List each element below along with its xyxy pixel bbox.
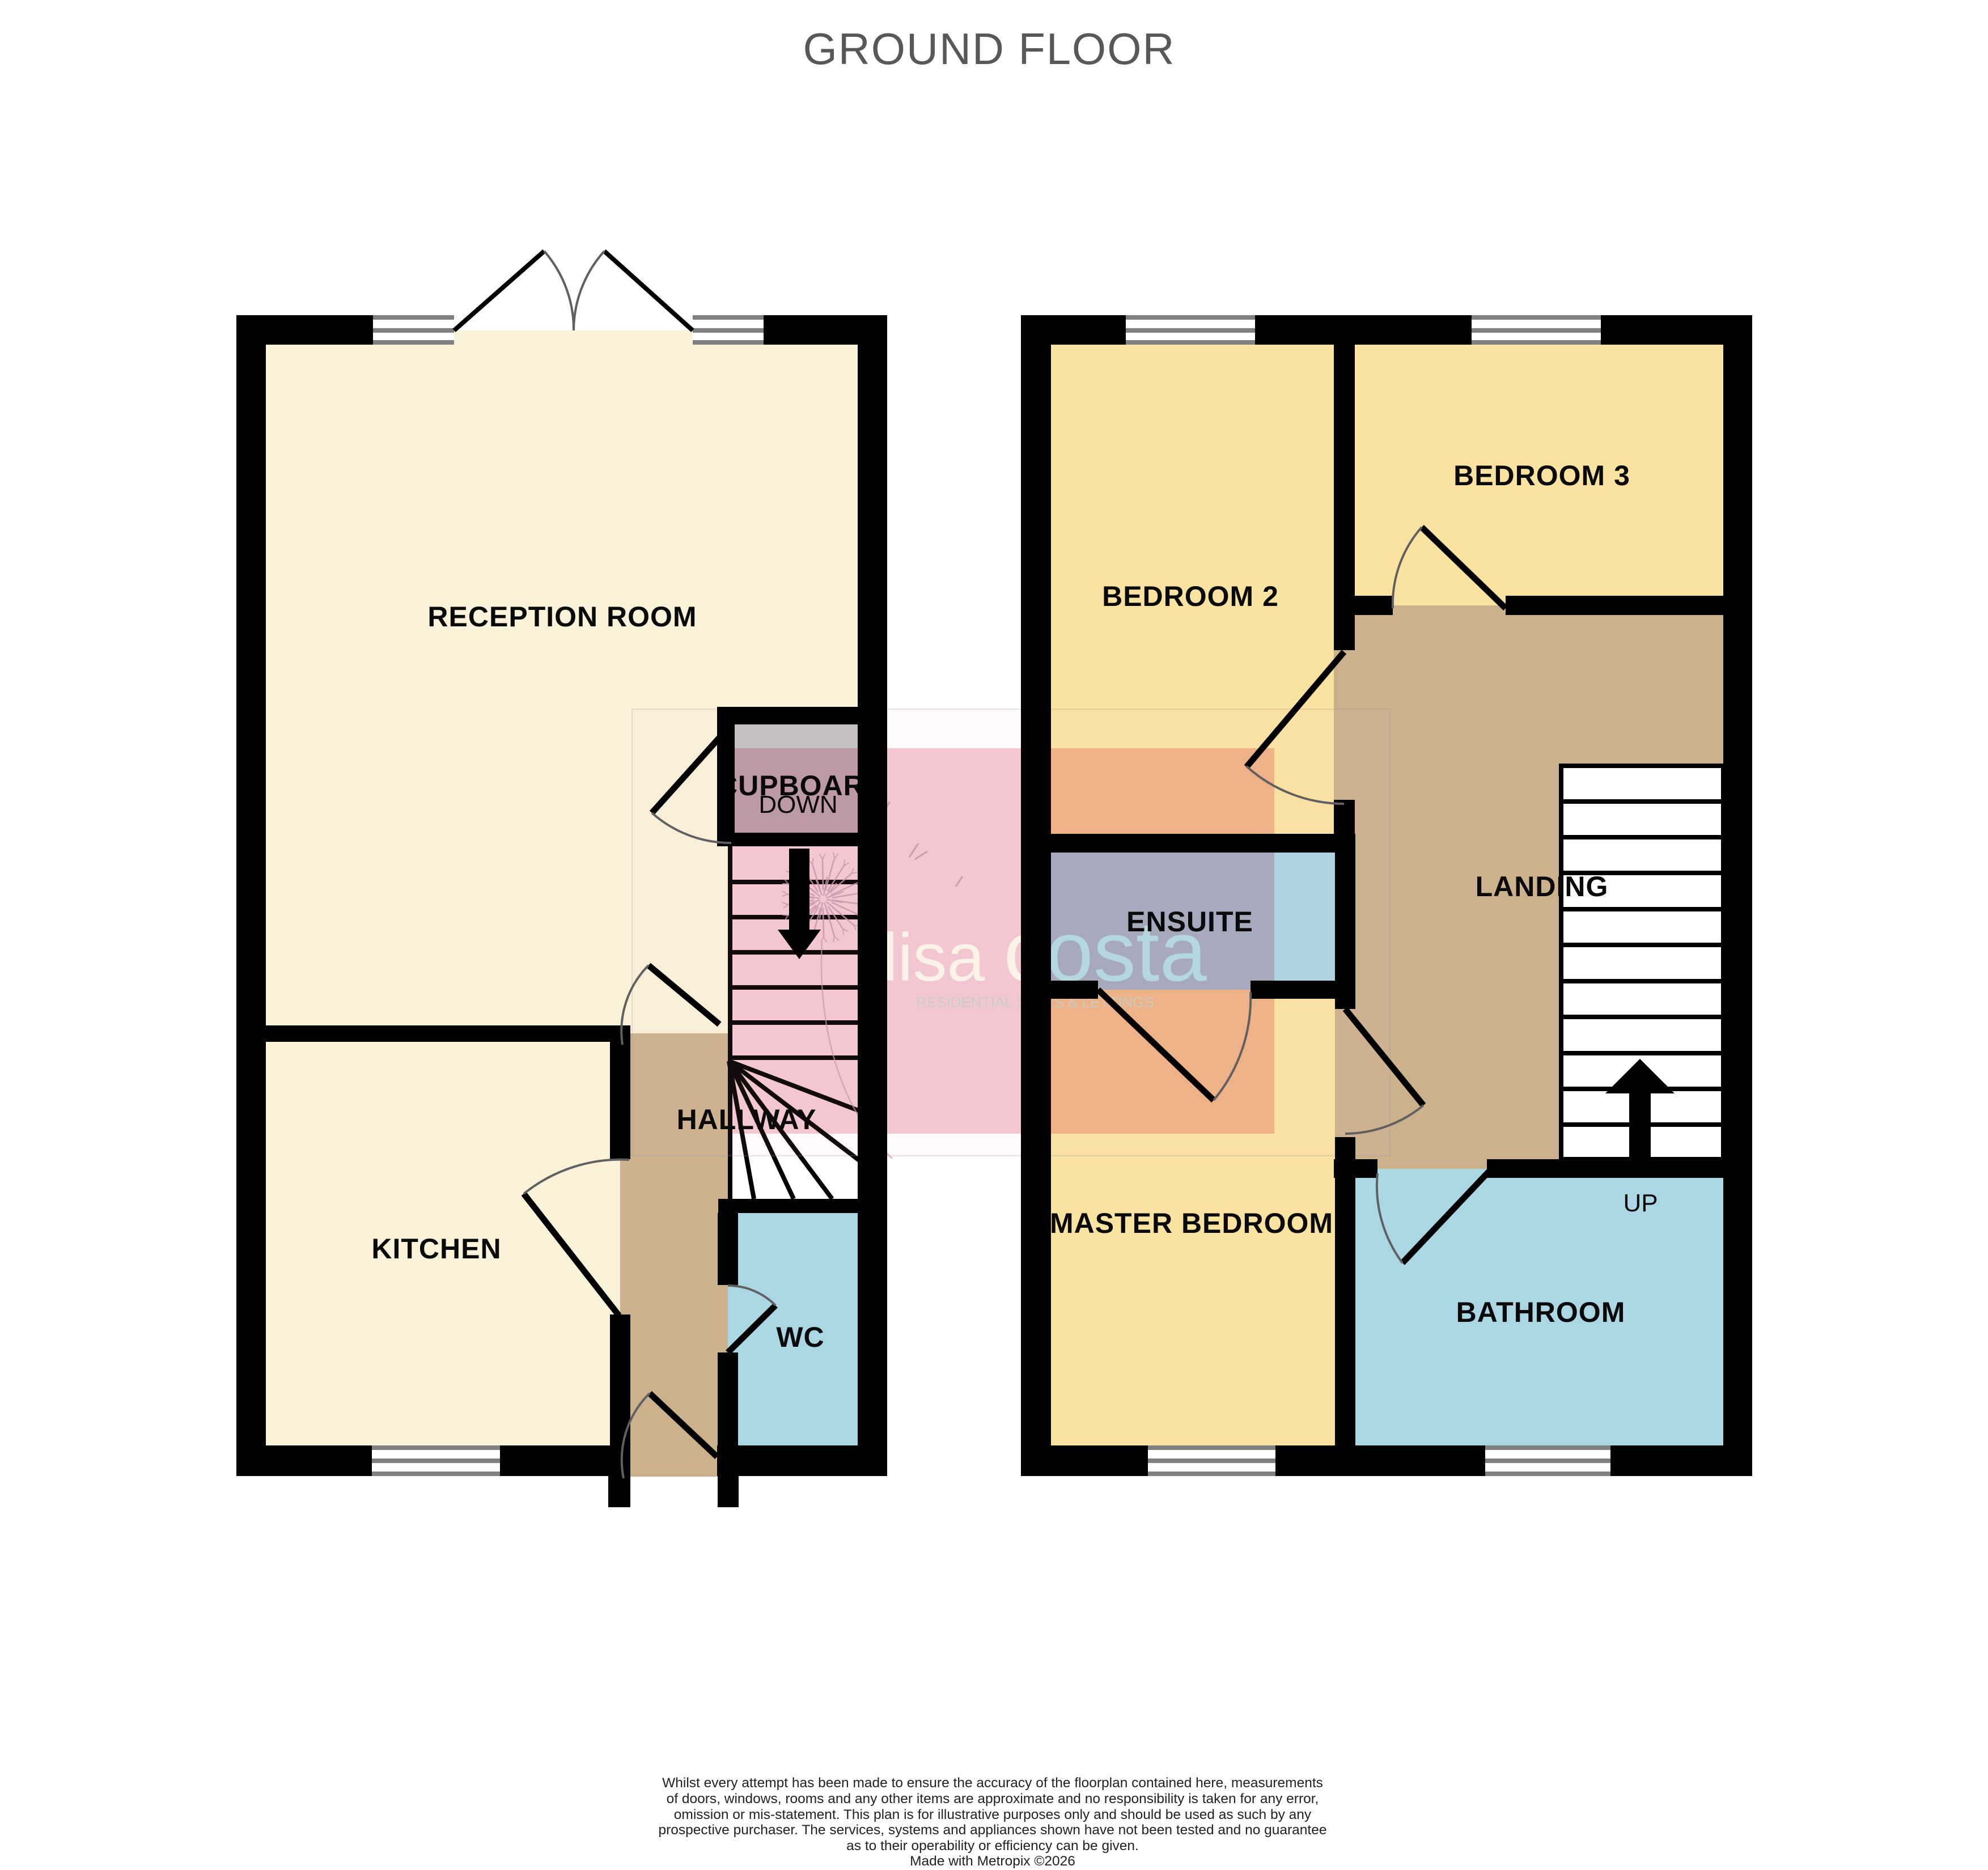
svg-text:of doors, windows, rooms and a: of doors, windows, rooms and any other i…	[667, 1791, 1319, 1807]
svg-text:prospective purchaser. The ser: prospective purchaser. The services, sys…	[658, 1822, 1326, 1838]
svg-text:MASTER BEDROOM: MASTER BEDROOM	[1050, 1207, 1333, 1239]
svg-text:RECEPTION ROOM: RECEPTION ROOM	[427, 601, 697, 633]
svg-text:LANDING: LANDING	[1476, 871, 1609, 902]
svg-text:BEDROOM 3: BEDROOM 3	[1453, 460, 1630, 491]
svg-text:KITCHEN: KITCHEN	[371, 1233, 501, 1265]
svg-text:DOWN: DOWN	[758, 791, 837, 819]
svg-text:omission or mis-statement. Thi: omission or mis-statement. This plan is …	[674, 1807, 1312, 1822]
svg-text:Whilst every attempt has been: Whilst every attempt has been made to en…	[662, 1775, 1323, 1791]
svg-text:HALLWAY: HALLWAY	[677, 1104, 817, 1135]
svg-text:BEDROOM 2: BEDROOM 2	[1102, 580, 1279, 612]
svg-text:ENSUITE: ENSUITE	[1126, 906, 1253, 938]
svg-text:BATHROOM: BATHROOM	[1456, 1296, 1626, 1328]
svg-text:as to their operability or eff: as to their operability or efficiency ca…	[846, 1838, 1139, 1854]
svg-text:GROUND FLOOR: GROUND FLOOR	[803, 25, 1176, 74]
svg-text:Made with Metropix ©2026: Made with Metropix ©2026	[910, 1854, 1075, 1869]
svg-text:WC: WC	[776, 1321, 824, 1353]
svg-text:UP: UP	[1623, 1189, 1658, 1217]
